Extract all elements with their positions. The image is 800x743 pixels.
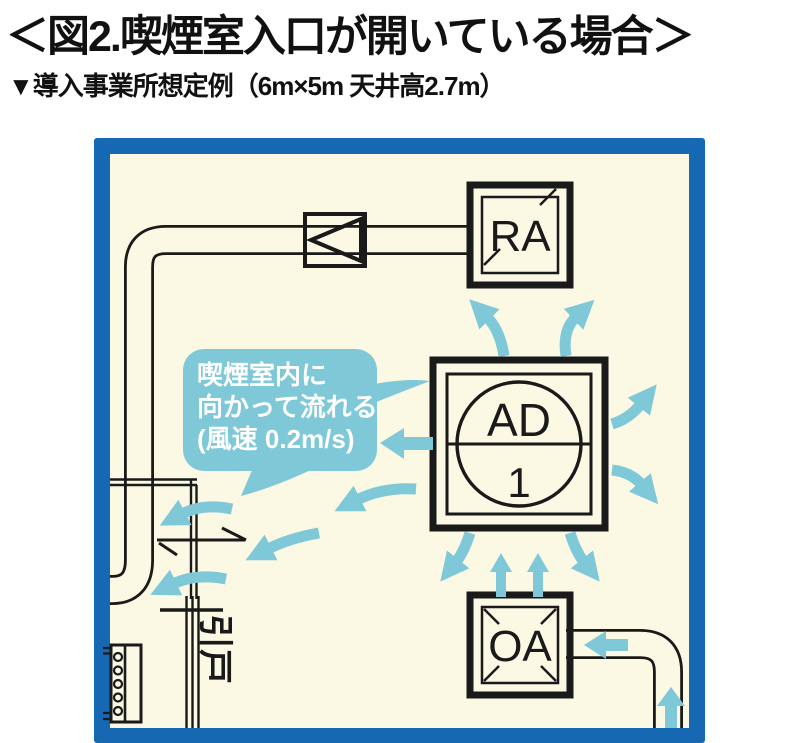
ad-number: 1: [507, 459, 530, 506]
callout-line-3: (風速 0.2m/s): [197, 424, 355, 454]
ra-label: RA: [489, 212, 551, 261]
sliding-door-label: 引戸: [195, 614, 234, 684]
callout-line-1: 喫煙室内に: [197, 360, 327, 390]
figure-page: ＜図2.喫煙室入口が開いている場合＞ ▼導入事業所想定例（6m×5m 天井高2.…: [0, 0, 800, 743]
ventilation-diagram: 引戸 RA AD 1: [0, 0, 800, 743]
ad-label: AD: [487, 394, 551, 446]
callout-line-2: 向かって流れる: [197, 392, 378, 422]
oa-label: OA: [488, 622, 552, 671]
